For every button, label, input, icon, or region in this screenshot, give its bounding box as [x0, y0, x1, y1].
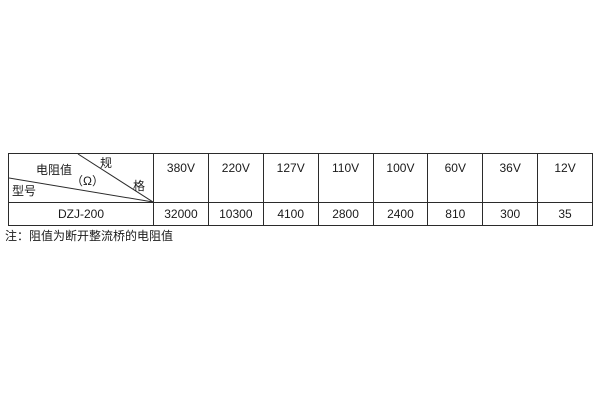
- voltage-header-12v: 12V: [537, 154, 592, 202]
- corner-header-cell: 规 格 电阻值 （Ω） 型号: [9, 154, 153, 202]
- corner-label-resistance: 电阻值: [36, 164, 72, 176]
- corner-label-spec-char1: 规: [100, 157, 112, 169]
- resistance-value-380v: 32000: [153, 203, 208, 225]
- voltage-header-220v: 220V: [208, 154, 263, 202]
- resistance-spec-table: 规 格 电阻值 （Ω） 型号 380V 220V 127V 110V 100V …: [8, 153, 593, 226]
- resistance-value-60v: 810: [427, 203, 482, 225]
- voltage-header-60v: 60V: [427, 154, 482, 202]
- table-header-row: 规 格 电阻值 （Ω） 型号 380V 220V 127V 110V 100V …: [9, 154, 592, 202]
- footnote: 注：阻值为断开整流桥的电阻值: [5, 229, 173, 243]
- table-data-row: DZJ-200 32000 10300 4100 2800 2400 810 3…: [9, 202, 592, 225]
- resistance-value-220v: 10300: [208, 203, 263, 225]
- voltage-header-100v: 100V: [373, 154, 428, 202]
- voltage-header-36v: 36V: [482, 154, 537, 202]
- resistance-value-100v: 2400: [373, 203, 428, 225]
- corner-label-model: 型号: [12, 185, 36, 197]
- corner-label-spec-char2: 格: [133, 180, 145, 192]
- voltage-header-127v: 127V: [263, 154, 318, 202]
- corner-label-ohm-unit: （Ω）: [71, 175, 104, 187]
- voltage-header-380v: 380V: [153, 154, 208, 202]
- model-name-cell: DZJ-200: [9, 203, 153, 225]
- resistance-value-127v: 4100: [263, 203, 318, 225]
- resistance-value-12v: 35: [537, 203, 592, 225]
- resistance-value-110v: 2800: [318, 203, 373, 225]
- resistance-value-36v: 300: [482, 203, 537, 225]
- page: 规 格 电阻值 （Ω） 型号 380V 220V 127V 110V 100V …: [0, 0, 600, 400]
- voltage-header-110v: 110V: [318, 154, 373, 202]
